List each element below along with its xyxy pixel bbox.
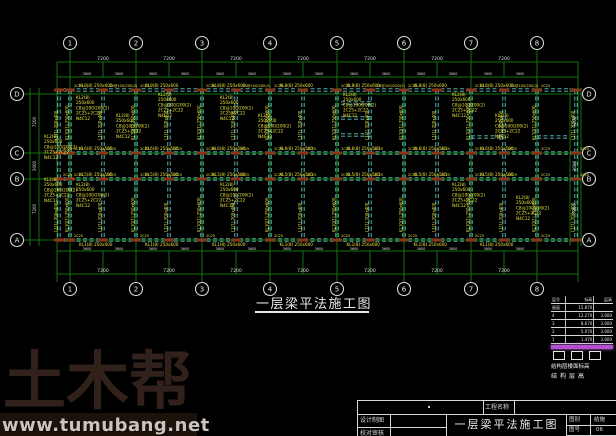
svg-text:3600: 3600 [115,247,124,251]
svg-text:2C25: 2C25 [408,234,417,238]
svg-text:7200: 7200 [297,56,309,62]
svg-text:3600: 3600 [382,72,391,76]
svg-text:2C25: 2C25 [341,234,350,238]
svg-text:3600: 3600 [449,72,458,76]
figure-no-value: 06 [596,425,616,435]
project-name-label: 工程名称 [485,402,514,414]
svg-text:3600: 3600 [181,72,190,76]
svg-text:L1(1) 200x400: L1(1) 200x400 [298,110,303,140]
svg-text:2C25: 2C25 [408,147,417,151]
svg-text:2C25: 2C25 [441,147,450,151]
svg-text:2C25: 2C25 [173,173,182,177]
elevation-row: 11.4703.600 [551,336,613,344]
svg-text:N4C12: N4C12 [452,113,466,118]
svg-text:2C25: 2C25 [206,173,215,177]
svg-text:2C25: 2C25 [508,147,517,151]
svg-text:2C25: 2C25 [475,234,484,238]
svg-text:2C25: 2C25 [74,173,83,177]
svg-text:KL10(1) 250x600: KL10(1) 250x600 [65,197,70,232]
svg-text:L1(1) 200x400: L1(1) 200x400 [365,202,370,232]
svg-text:7200: 7200 [364,268,376,274]
svg-text:KL8(8) 250x600: KL8(8) 250x600 [79,83,113,88]
figure-type-value: 结施 [594,415,616,425]
svg-text:N4C12: N4C12 [516,216,530,221]
watermark-brand: 土木帮 [3,350,192,414]
svg-text:KL8(8) 250x600: KL8(8) 250x600 [347,83,381,88]
svg-text:3600: 3600 [484,247,493,251]
svg-text:D: D [586,90,591,98]
watermark-url: www.tumubang.net [2,415,210,436]
svg-text:2C25: 2C25 [541,234,550,238]
svg-text:2C25: 2C25 [107,173,116,177]
svg-text:7200: 7200 [163,268,175,274]
svg-text:2C25: 2C25 [374,173,383,177]
svg-text:3000: 3000 [32,160,37,171]
svg-text:2C25: 2C25 [307,173,316,177]
svg-text:L1(1) 200x400: L1(1) 200x400 [164,202,169,232]
svg-text:7200: 7200 [32,116,37,127]
svg-text:2C25: 2C25 [580,147,589,151]
svg-text:2: 2 [134,39,138,47]
svg-text:3600: 3600 [350,247,359,251]
svg-text:7200: 7200 [498,268,510,274]
svg-text:3: 3 [200,285,204,293]
svg-text:3000: 3000 [572,160,577,171]
svg-text:3600: 3600 [315,247,324,251]
svg-text:7200: 7200 [572,116,577,127]
svg-text:2C25: 2C25 [74,234,83,238]
svg-text:3600: 3600 [248,247,257,251]
svg-text:2C25: 2C25 [240,147,249,151]
svg-text:7200: 7200 [431,268,443,274]
svg-text:3600: 3600 [484,72,493,76]
svg-text:2C25: 2C25 [580,173,589,177]
title-block-mark [428,406,430,408]
svg-text:KL10(1) 250x600: KL10(1) 250x600 [197,197,202,232]
figure-no-label: 图号 [569,425,590,435]
svg-text:L1(1) 200x400: L1(1) 200x400 [54,202,59,232]
svg-text:N4C12: N4C12 [44,198,58,203]
svg-text:3600: 3600 [248,72,257,76]
svg-text:KL10(1) 250x600: KL10(1) 250x600 [131,197,136,232]
svg-text:7200: 7200 [97,268,109,274]
svg-text:A: A [587,236,592,244]
svg-text:7: 7 [469,39,473,47]
svg-text:3600: 3600 [449,247,458,251]
svg-text:6: 6 [402,285,407,293]
svg-text:C8@100/200(2): C8@100/200(2) [109,84,138,88]
svg-text:2C25: 2C25 [341,84,350,88]
svg-text:7200: 7200 [230,268,242,274]
svg-text:3600: 3600 [516,247,525,251]
svg-text:L1(1) 200x400: L1(1) 200x400 [432,202,437,232]
title-block: 工程名称 设计制图 校对审核 一层梁平法施工图 图别 结施 图号 06 日期 [357,400,616,436]
svg-text:C: C [15,149,20,157]
svg-text:2C25: 2C25 [408,173,417,177]
svg-text:2C25: 2C25 [341,173,350,177]
svg-text:KL10(1) 250x600: KL10(1) 250x600 [197,105,202,140]
svg-text:3600: 3600 [283,247,292,251]
svg-text:KL10(1) 250x600: KL10(1) 250x600 [532,105,537,140]
svg-text:KL8(8) 250x600: KL8(8) 250x600 [145,83,179,88]
svg-text:7200: 7200 [163,56,175,62]
svg-text:2C25: 2C25 [307,147,316,151]
svg-text:3600: 3600 [315,72,324,76]
svg-text:N4C12: N4C12 [44,155,58,160]
plan-title-underline [255,311,369,313]
elevation-row: 层号标高层高 [551,296,613,304]
svg-text:2C25: 2C25 [541,147,550,151]
svg-text:KL8(8) 250x600: KL8(8) 250x600 [414,83,448,88]
svg-text:3600: 3600 [149,72,158,76]
svg-text:2C25: 2C25 [274,234,283,238]
svg-text:N4C12: N4C12 [495,134,509,139]
svg-text:8: 8 [535,285,539,293]
svg-text:2C25: 2C25 [475,173,484,177]
elevation-row: 25.0703.600 [551,328,613,336]
svg-text:3600: 3600 [216,72,225,76]
svg-text:N4C12: N4C12 [258,134,272,139]
svg-text:6: 6 [402,39,407,47]
svg-text:L1(1) 200x400: L1(1) 200x400 [365,110,370,140]
svg-text:2C25: 2C25 [274,147,283,151]
svg-text:C8@100/200(2): C8@100/200(2) [510,84,539,88]
svg-text:3600: 3600 [350,72,359,76]
checker-label: 校对审核 [360,428,390,436]
cad-viewport: 1122334455667788DDCCBBAAKL8(8) 250x600C8… [0,0,616,436]
svg-text:4: 4 [268,39,273,47]
svg-text:5: 5 [335,39,339,47]
svg-text:7: 7 [469,285,473,293]
svg-text:7200: 7200 [32,203,37,214]
svg-text:2C25: 2C25 [140,147,149,151]
svg-text:2C25: 2C25 [206,234,215,238]
svg-text:2C25: 2C25 [475,84,484,88]
svg-text:1: 1 [68,285,72,293]
svg-text:KL8(8) 250x600: KL8(8) 250x600 [280,83,314,88]
elevation-row: 屋面15.870 [551,304,613,312]
svg-text:B: B [15,175,20,183]
svg-text:3600: 3600 [216,247,225,251]
svg-text:L1(1) 200x400: L1(1) 200x400 [98,202,103,232]
svg-text:1: 1 [68,39,72,47]
svg-text:C8@100/200(2): C8@100/200(2) [242,84,271,88]
svg-text:N4C12: N4C12 [452,203,466,208]
svg-text:3600: 3600 [149,247,158,251]
svg-text:KL10(1) 250x600: KL10(1) 250x600 [265,197,270,232]
plan-title: 一层梁平法施工图 [256,293,372,312]
svg-text:2C25: 2C25 [408,84,417,88]
svg-text:2: 2 [134,285,138,293]
svg-text:2C25: 2C25 [173,147,182,151]
svg-text:KL10(1) 250x600: KL10(1) 250x600 [399,105,404,140]
elevation-rows: 层号标高层高屋面15.870412.2703.60038.6703.60025.… [551,296,613,344]
svg-text:3600: 3600 [283,72,292,76]
svg-text:2C25: 2C25 [107,147,116,151]
svg-text:KL10(1) 250x600: KL10(1) 250x600 [332,105,337,140]
svg-text:C8@100/200(2): C8@100/200(2) [377,84,406,88]
svg-text:2C25: 2C25 [63,173,72,177]
svg-text:7200: 7200 [498,56,510,62]
figure-type-label: 图别 [569,415,590,425]
svg-text:N4C12: N4C12 [220,116,234,121]
svg-text:KL10(1) 250x600: KL10(1) 250x600 [65,105,70,140]
svg-text:3600: 3600 [417,247,426,251]
svg-text:2C25: 2C25 [541,84,550,88]
svg-text:2C25: 2C25 [206,84,215,88]
svg-text:2C25: 2C25 [374,147,383,151]
designer-label: 设计制图 [360,415,390,427]
svg-text:N4C12: N4C12 [220,203,234,208]
svg-text:3600: 3600 [83,247,92,251]
svg-text:L1(1) 200x400: L1(1) 200x400 [499,202,504,232]
svg-text:3600: 3600 [115,72,124,76]
svg-text:2C25: 2C25 [140,234,149,238]
svg-text:3600: 3600 [83,72,92,76]
drawing-name: 一层梁平法施工图 [447,414,566,436]
svg-text:2C25: 2C25 [508,173,517,177]
svg-text:A: A [15,236,20,244]
svg-text:2C25: 2C25 [541,173,550,177]
elevation-row: 38.6703.600 [551,320,613,328]
svg-text:7200: 7200 [431,56,443,62]
svg-text:3600: 3600 [417,72,426,76]
svg-text:KL8(8) 250x600: KL8(8) 250x600 [212,83,246,88]
beam-annotations: KL8(8) 250x600C8@100/200(2)KL6(8) 250x50… [44,83,589,247]
svg-text:2C25: 2C25 [441,173,450,177]
svg-text:2C25: 2C25 [140,173,149,177]
svg-text:KL10(1) 250x600: KL10(1) 250x600 [332,197,337,232]
svg-text:2C25: 2C25 [274,84,283,88]
svg-text:2C25: 2C25 [475,147,484,151]
elevation-highlight-band [551,345,613,349]
svg-text:N4C12: N4C12 [116,134,130,139]
svg-text:7200: 7200 [230,56,242,62]
elevation-note-boxes [553,351,613,360]
svg-text:7200: 7200 [364,56,376,62]
svg-text:2C25: 2C25 [341,147,350,151]
svg-text:7200: 7200 [297,268,309,274]
svg-text:N4C12: N4C12 [76,203,90,208]
svg-text:2C25: 2C25 [274,173,283,177]
svg-text:3600: 3600 [516,72,525,76]
elevation-caption: 结构层楼面标高 [551,362,613,370]
svg-text:L1(1) 200x400: L1(1) 200x400 [298,202,303,232]
svg-text:3600: 3600 [181,247,190,251]
svg-text:7200: 7200 [572,203,577,214]
svg-text:L1(1) 200x400: L1(1) 200x400 [432,110,437,140]
svg-text:N4C12: N4C12 [343,113,357,118]
svg-text:KL8(8) 250x600: KL8(8) 250x600 [480,83,514,88]
svg-text:7200: 7200 [97,56,109,62]
elevation-table: 层号标高层高屋面15.870412.2703.60038.6703.60025.… [551,296,613,380]
svg-text:2C25: 2C25 [240,173,249,177]
svg-text:N4C12: N4C12 [76,116,90,121]
svg-text:2C25: 2C25 [74,84,83,88]
svg-text:N4C12: N4C12 [158,113,172,118]
svg-text:3600: 3600 [382,247,391,251]
svg-text:2C25: 2C25 [140,84,149,88]
svg-text:2C25: 2C25 [206,147,215,151]
elevation-row: 412.2703.600 [551,312,613,320]
svg-text:3: 3 [200,39,204,47]
svg-text:KL10(1) 250x600: KL10(1) 250x600 [399,197,404,232]
svg-text:8: 8 [535,39,539,47]
svg-text:D: D [14,90,19,98]
elevation-caption-2: 结构层高 [551,371,613,380]
